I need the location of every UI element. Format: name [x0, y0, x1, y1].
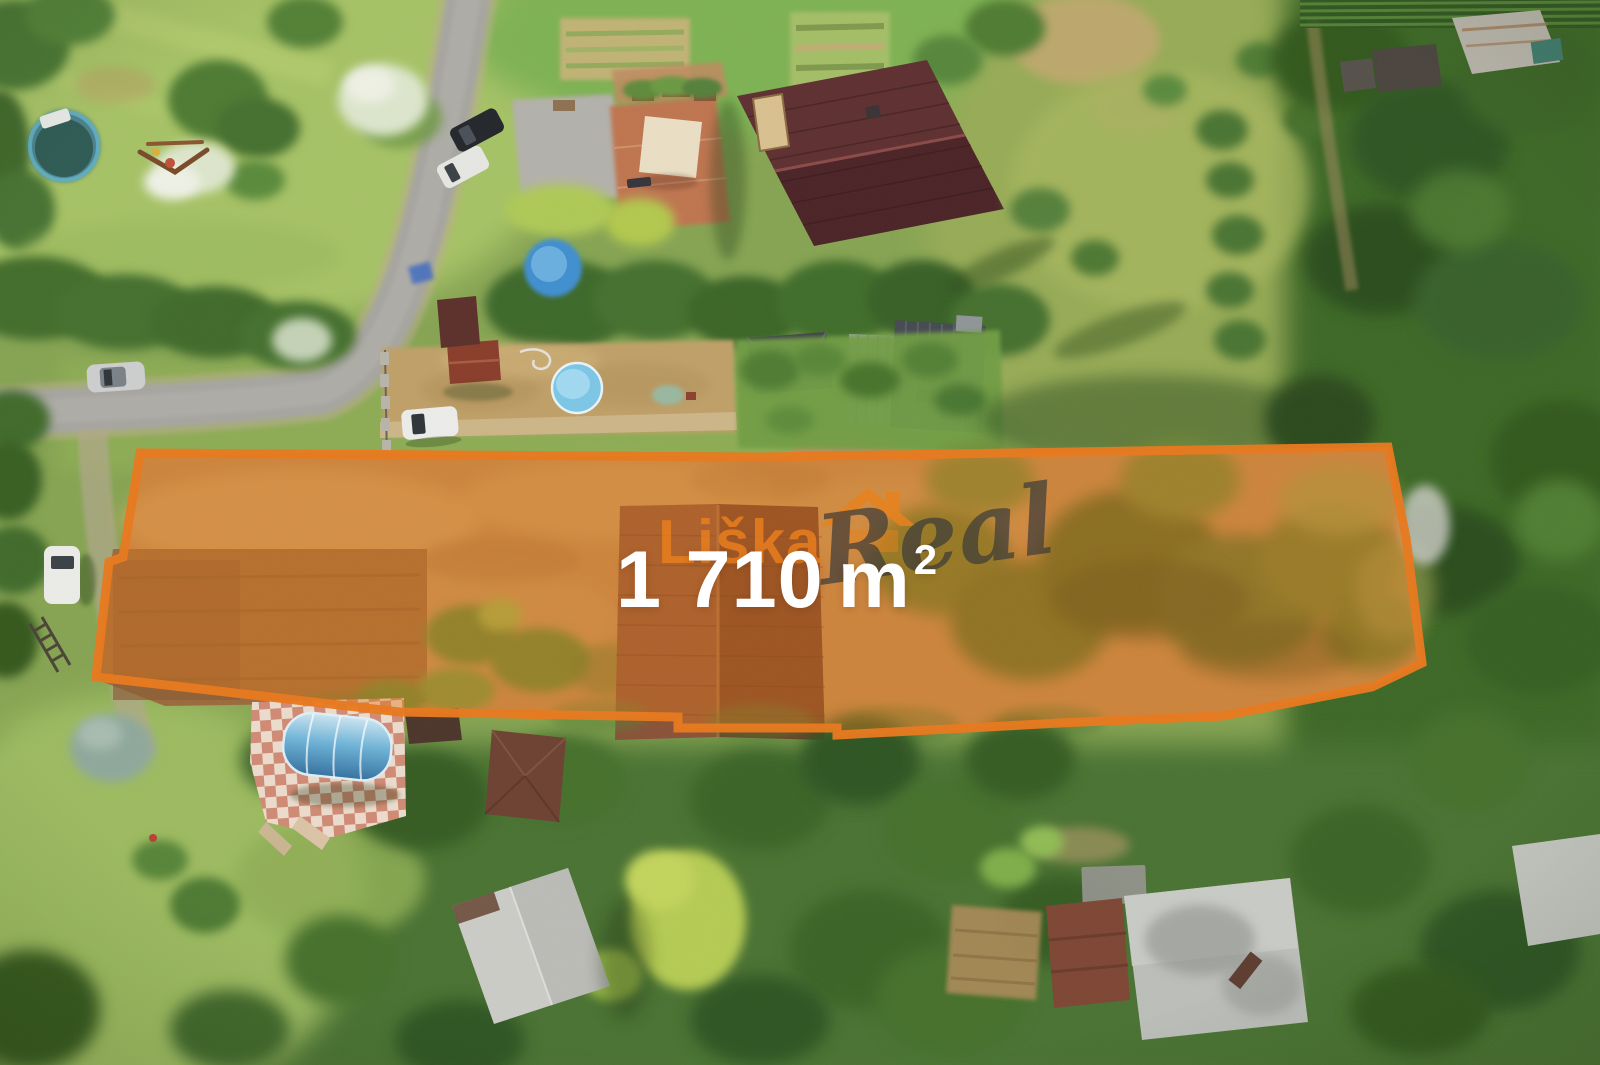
area-value: 1 710 [616, 535, 824, 625]
area-unit: m [838, 535, 911, 625]
area-superscript: 2 [914, 536, 938, 583]
film-grain [0, 0, 1600, 1065]
aerial-photo: Liška Real 1 710m2 [0, 0, 1600, 1065]
aerial-scene [0, 0, 1600, 1065]
plot-area-label: 1 710m2 [616, 540, 938, 621]
